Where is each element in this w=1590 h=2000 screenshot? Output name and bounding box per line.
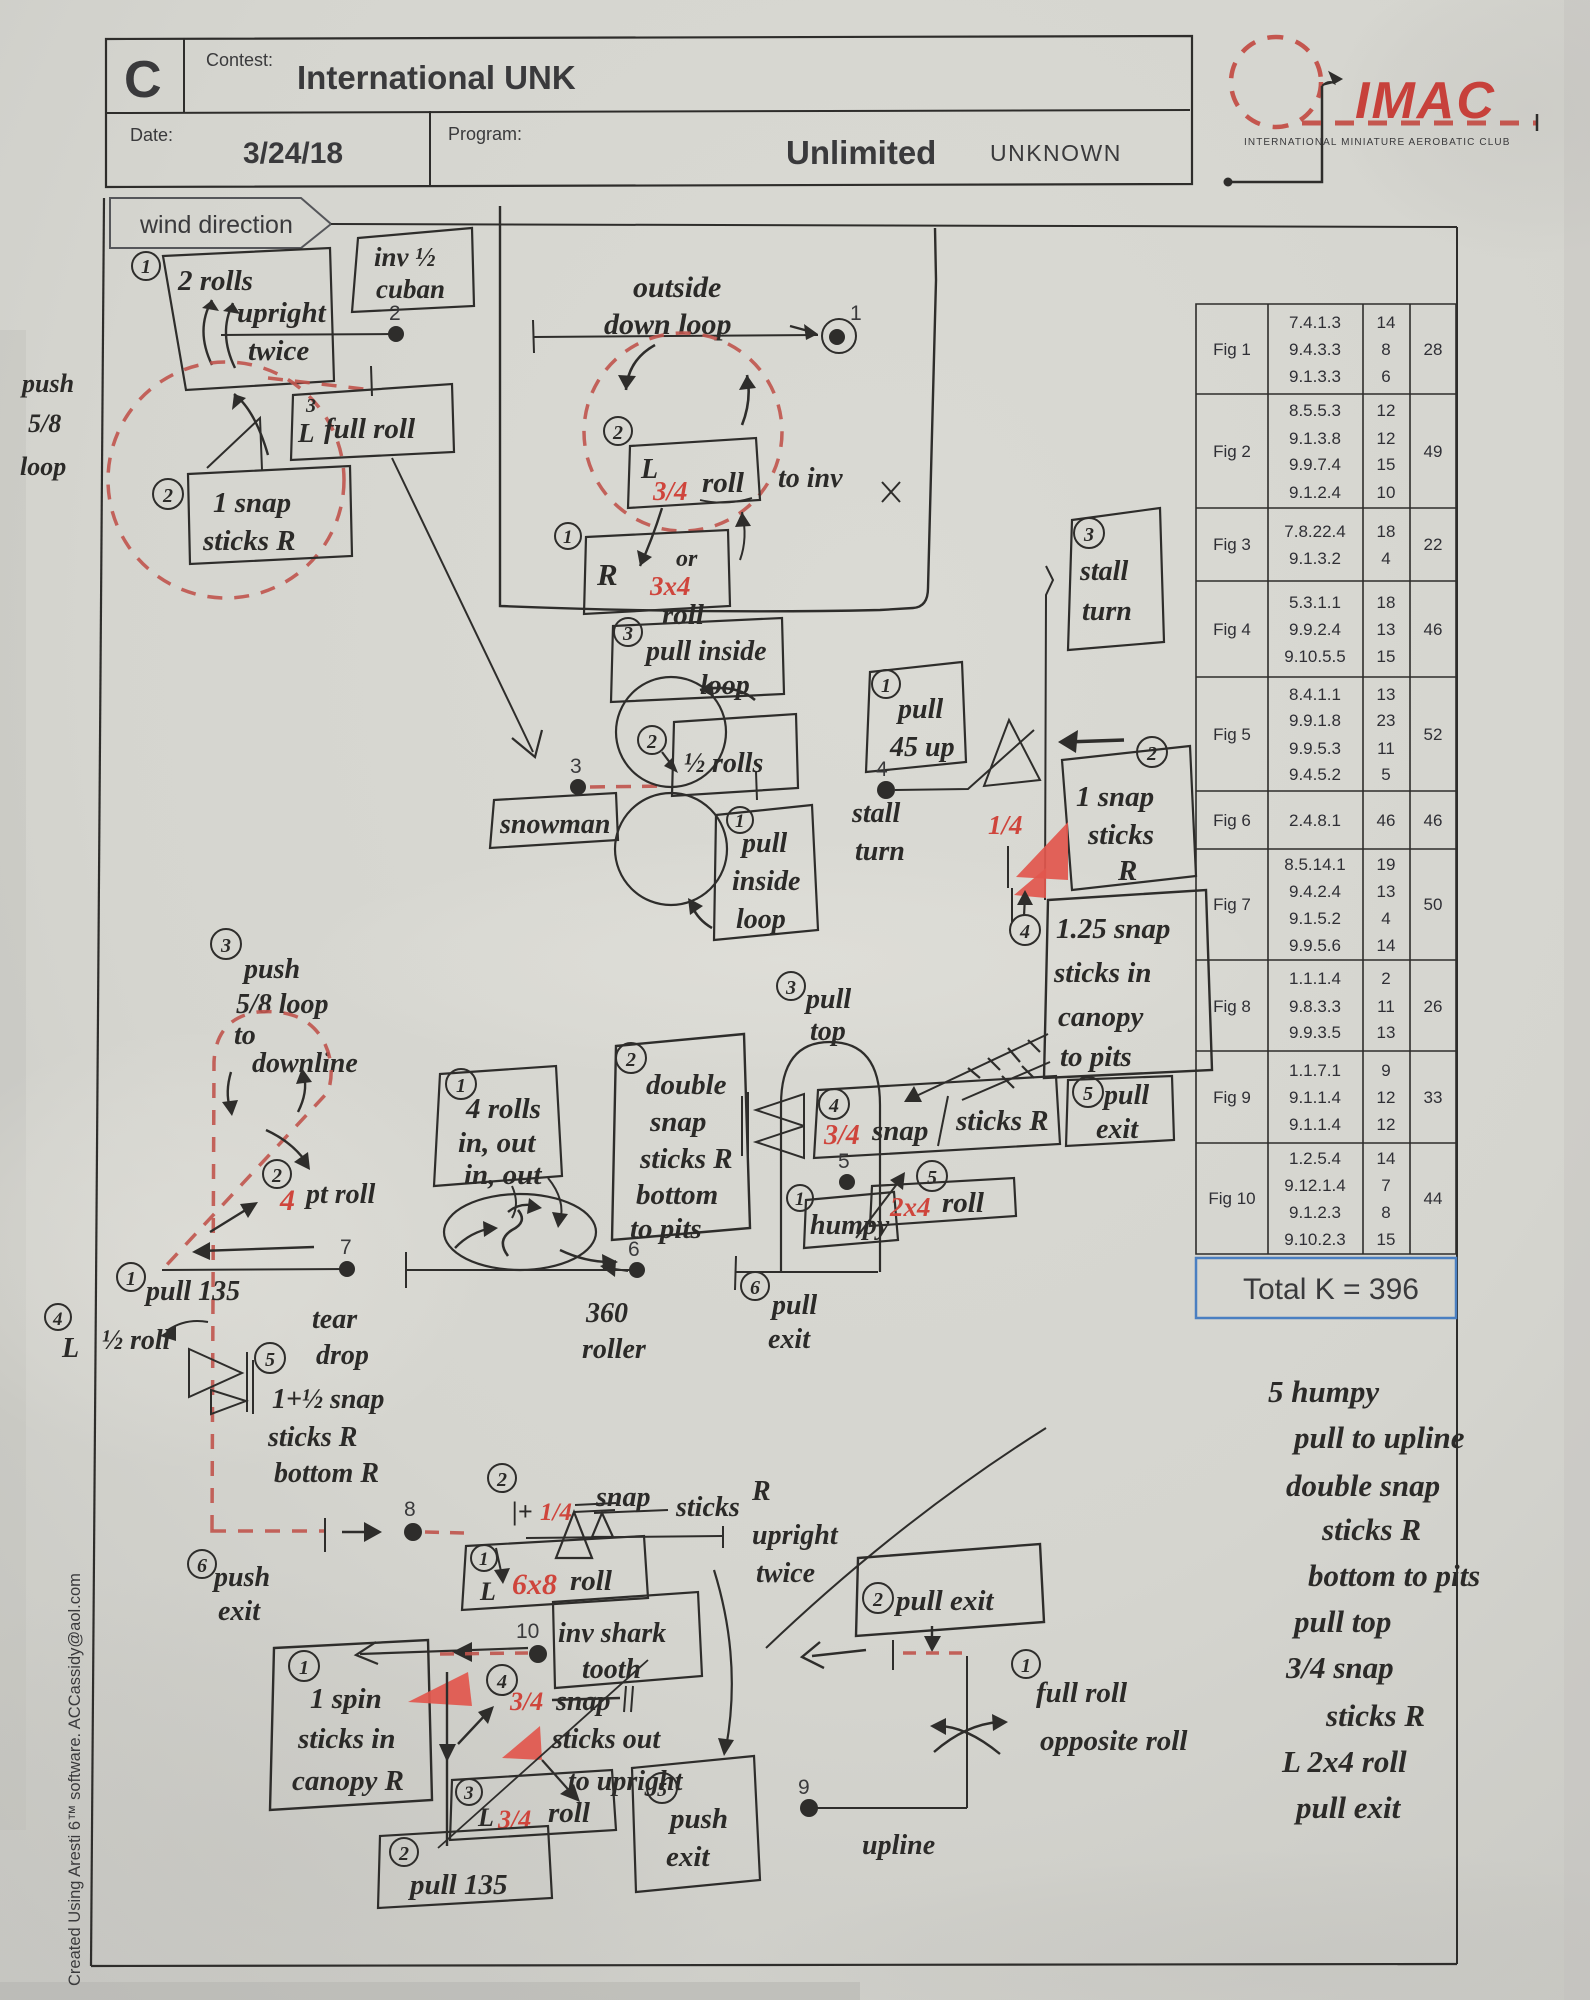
svg-text:roll: roll [662, 599, 705, 631]
svg-text:canopy R: canopy R [292, 1765, 404, 1797]
svg-text:1/4: 1/4 [988, 810, 1023, 840]
svg-text:9.1.1.4: 9.1.1.4 [1289, 1115, 1341, 1134]
svg-text:Fig 5: Fig 5 [1213, 725, 1251, 744]
svg-text:22: 22 [1424, 535, 1443, 554]
svg-text:5: 5 [657, 1779, 667, 1801]
svg-text:Total K = 396: Total K = 396 [1243, 1273, 1419, 1306]
svg-text:upright: upright [237, 297, 327, 329]
svg-text:upright: upright [752, 1520, 839, 1551]
svg-text:Fig 6: Fig 6 [1213, 811, 1251, 830]
svg-text:8.4.1.1: 8.4.1.1 [1289, 685, 1341, 704]
svg-text:18: 18 [1377, 593, 1396, 612]
svg-text:double: double [646, 1069, 727, 1101]
svg-text:10: 10 [1377, 483, 1396, 502]
svg-text:Fig 9: Fig 9 [1213, 1088, 1251, 1107]
svg-text:International UNK: International UNK [297, 59, 576, 96]
svg-text:Unlimited: Unlimited [786, 134, 936, 171]
svg-text:7: 7 [340, 1236, 352, 1259]
svg-text:9: 9 [1381, 1061, 1390, 1080]
svg-text:in, out: in, out [464, 1159, 542, 1191]
svg-text:opposite roll: opposite roll [1040, 1725, 1188, 1757]
svg-text:pull exit: pull exit [893, 1585, 994, 1617]
svg-text:wind direction: wind direction [139, 211, 293, 239]
svg-text:roll: roll [942, 1187, 985, 1219]
svg-text:pull: pull [770, 1290, 817, 1321]
svg-text:pt roll: pt roll [304, 1179, 375, 1210]
svg-text:9.4.5.2: 9.4.5.2 [1289, 765, 1341, 784]
svg-text:snowman: snowman [499, 809, 611, 840]
svg-text:9.1.3.2: 9.1.3.2 [1289, 549, 1341, 568]
svg-text:snap: snap [595, 1482, 650, 1513]
svg-text:loop: loop [736, 904, 786, 935]
svg-text:9.1.5.2: 9.1.5.2 [1289, 909, 1341, 928]
svg-text:5/8 loop: 5/8 loop [236, 989, 329, 1020]
svg-text:360: 360 [585, 1298, 628, 1329]
svg-text:9.4.3.3: 9.4.3.3 [1289, 340, 1341, 359]
svg-text:roller: roller [582, 1334, 647, 1365]
svg-text:18: 18 [1377, 522, 1396, 541]
svg-text:2: 2 [612, 422, 623, 444]
svg-text:push: push [20, 369, 74, 398]
svg-text:2: 2 [1146, 743, 1157, 765]
svg-text:52: 52 [1424, 725, 1443, 744]
svg-text:9.4.2.4: 9.4.2.4 [1289, 882, 1341, 901]
svg-text:to pits: to pits [630, 1213, 702, 1245]
svg-text:inv ½: inv ½ [374, 242, 436, 272]
svg-text:3/24/18: 3/24/18 [243, 137, 343, 170]
svg-text:26: 26 [1424, 997, 1443, 1016]
svg-text:13: 13 [1377, 882, 1396, 901]
svg-text:33: 33 [1424, 1088, 1443, 1107]
svg-text:3/4: 3/4 [652, 476, 688, 506]
svg-text:to inv: to inv [778, 463, 843, 494]
svg-text:pull 135: pull 135 [144, 1276, 240, 1307]
svg-text:½ roll: ½ roll [102, 1325, 171, 1356]
svg-text:10: 10 [516, 1620, 539, 1643]
svg-text:3/4: 3/4 [823, 1120, 860, 1151]
svg-text:5: 5 [1381, 765, 1390, 784]
svg-text:C: C [124, 51, 162, 109]
svg-text:sticks: sticks [675, 1492, 740, 1523]
svg-text:pull: pull [804, 984, 851, 1015]
svg-text:1: 1 [850, 302, 862, 325]
svg-text:9.9.1.8: 9.9.1.8 [1289, 711, 1341, 730]
svg-text:9.9.3.5: 9.9.3.5 [1289, 1023, 1341, 1042]
svg-text:Contest:: Contest: [206, 50, 273, 70]
svg-text:drop: drop [316, 1340, 369, 1371]
svg-text:stall: stall [851, 798, 900, 829]
svg-text:UNKNOWN: UNKNOWN [990, 140, 1122, 166]
svg-text:5 humpy: 5 humpy [1268, 1374, 1379, 1409]
svg-text:Fig 10: Fig 10 [1208, 1189, 1255, 1208]
svg-text:double snap: double snap [1286, 1468, 1440, 1503]
svg-text:1: 1 [795, 1189, 805, 1210]
svg-text:49: 49 [1424, 442, 1443, 461]
svg-text:bottom to pits: bottom to pits [1308, 1558, 1480, 1593]
svg-text:3/4 snap: 3/4 snap [1285, 1650, 1394, 1685]
svg-text:INTERNATIONAL MINIATURE AEROBA: INTERNATIONAL MINIATURE AEROBATIC CLUB [1244, 137, 1510, 148]
svg-text:1 snap: 1 snap [213, 487, 291, 519]
svg-text:sticks R: sticks R [955, 1105, 1049, 1137]
svg-text:46: 46 [1377, 811, 1396, 830]
svg-text:sticks R: sticks R [1321, 1512, 1421, 1547]
svg-text:6x8: 6x8 [512, 1568, 557, 1601]
svg-text:L: L [61, 1333, 79, 1364]
svg-text:5.3.1.1: 5.3.1.1 [1289, 593, 1341, 612]
svg-text:5: 5 [265, 1349, 275, 1371]
svg-text:2: 2 [872, 1589, 883, 1611]
svg-text:full roll: full roll [1036, 1677, 1128, 1709]
svg-text:2: 2 [162, 485, 173, 507]
svg-text:Fig 1: Fig 1 [1213, 340, 1251, 359]
svg-text:sticks R: sticks R [267, 1422, 357, 1453]
svg-text:1: 1 [126, 1268, 136, 1290]
svg-text:2 rolls: 2 rolls [177, 265, 253, 297]
svg-text:L 2x4 roll: L 2x4 roll [1281, 1744, 1407, 1779]
svg-text:15: 15 [1377, 647, 1396, 666]
svg-text:push: push [242, 954, 300, 985]
svg-text:Created Using Aresti 6™ softwa: Created Using Aresti 6™ software. ACCass… [66, 1573, 84, 1986]
svg-text:turn: turn [1082, 596, 1132, 627]
svg-text:exit: exit [1096, 1114, 1139, 1145]
svg-text:turn: turn [855, 836, 905, 867]
svg-text:Fig 7: Fig 7 [1213, 895, 1251, 914]
svg-text:19: 19 [1377, 855, 1396, 874]
svg-text:9.10.5.5: 9.10.5.5 [1284, 647, 1345, 666]
svg-text:5: 5 [1083, 1083, 1093, 1105]
svg-text:6: 6 [750, 1277, 760, 1299]
svg-text:loop: loop [20, 452, 66, 481]
svg-text:13: 13 [1377, 620, 1396, 639]
svg-text:12: 12 [1377, 401, 1396, 420]
svg-text:9.9.5.6: 9.9.5.6 [1289, 936, 1341, 955]
svg-text:8.5.14.1: 8.5.14.1 [1284, 855, 1345, 874]
svg-text:sticks out: sticks out [551, 1724, 661, 1755]
svg-text:pull top: pull top [1291, 1604, 1391, 1639]
svg-text:7.8.22.4: 7.8.22.4 [1284, 522, 1345, 541]
svg-text:3: 3 [570, 755, 582, 778]
svg-text:snap: snap [649, 1106, 706, 1138]
svg-text:bottom: bottom [636, 1179, 718, 1211]
svg-text:4: 4 [828, 1095, 839, 1117]
svg-text:1.2.5.4: 1.2.5.4 [1289, 1149, 1341, 1168]
svg-text:9.1.3.3: 9.1.3.3 [1289, 367, 1341, 386]
svg-text:1.25 snap: 1.25 snap [1056, 913, 1170, 945]
svg-text:4: 4 [1019, 921, 1030, 943]
svg-text:Fig 2: Fig 2 [1213, 442, 1251, 461]
svg-text:12: 12 [1377, 429, 1396, 448]
svg-text:4 rolls: 4 rolls [465, 1093, 541, 1125]
svg-text:|+: |+ [512, 1497, 533, 1526]
svg-text:roll: roll [702, 467, 745, 499]
svg-text:pull: pull [896, 694, 943, 725]
svg-text:L: L [477, 1803, 494, 1832]
svg-text:1: 1 [881, 675, 891, 697]
svg-text:bottom R: bottom R [274, 1458, 379, 1489]
svg-text:44: 44 [1424, 1189, 1443, 1208]
svg-text:13: 13 [1377, 685, 1396, 704]
svg-text:9.10.2.3: 9.10.2.3 [1284, 1230, 1345, 1249]
svg-text:sticks R: sticks R [1325, 1698, 1425, 1733]
svg-text:pull to upline: pull to upline [1291, 1420, 1465, 1455]
svg-text:6: 6 [628, 1238, 640, 1261]
svg-text:pull exit: pull exit [1293, 1790, 1402, 1825]
svg-text:9: 9 [798, 1776, 810, 1799]
svg-text:9.9.5.3: 9.9.5.3 [1289, 739, 1341, 758]
svg-text:stall: stall [1079, 556, 1128, 587]
svg-text:or: or [676, 546, 698, 572]
svg-text:7.4.1.3: 7.4.1.3 [1289, 313, 1341, 332]
svg-text:exit: exit [768, 1324, 811, 1355]
svg-text:9.9.7.4: 9.9.7.4 [1289, 455, 1341, 474]
svg-text:R: R [596, 557, 618, 592]
svg-text:4: 4 [876, 758, 888, 781]
svg-text:R: R [751, 1476, 771, 1507]
svg-text:inside: inside [732, 866, 800, 897]
svg-text:½ rolls: ½ rolls [684, 748, 763, 779]
svg-text:9.1.2.3: 9.1.2.3 [1289, 1203, 1341, 1222]
svg-text:L: L [479, 1577, 496, 1606]
svg-text:L: L [297, 418, 315, 448]
svg-text:9.1.3.8: 9.1.3.8 [1289, 429, 1341, 448]
svg-text:1: 1 [1021, 1655, 1031, 1677]
svg-text:Fig 8: Fig 8 [1213, 997, 1251, 1016]
svg-text:4: 4 [1381, 909, 1390, 928]
svg-text:roll: roll [548, 1797, 591, 1829]
svg-text:46: 46 [1424, 620, 1443, 639]
svg-text:Fig 4: Fig 4 [1213, 620, 1251, 639]
svg-text:45 up: 45 up [889, 732, 955, 763]
svg-text:6: 6 [1381, 367, 1390, 386]
svg-text:14: 14 [1377, 1149, 1396, 1168]
svg-text:5: 5 [927, 1167, 937, 1189]
svg-text:3: 3 [305, 395, 316, 417]
svg-text:1 snap: 1 snap [1076, 781, 1154, 813]
svg-text:5: 5 [838, 1150, 850, 1173]
svg-text:1: 1 [479, 1549, 489, 1570]
svg-text:pull: pull [1102, 1080, 1149, 1111]
svg-text:1.1.7.1: 1.1.7.1 [1289, 1061, 1341, 1080]
svg-text:upline: upline [862, 1830, 935, 1861]
svg-text:1/4: 1/4 [540, 1499, 572, 1526]
svg-text:9.12.1.4: 9.12.1.4 [1284, 1176, 1345, 1195]
svg-text:canopy: canopy [1058, 1001, 1144, 1033]
svg-text:9.9.2.4: 9.9.2.4 [1289, 620, 1341, 639]
svg-text:4: 4 [496, 1671, 507, 1693]
svg-text:12: 12 [1377, 1115, 1396, 1134]
svg-text:6: 6 [197, 1555, 207, 1577]
svg-text:9.1.2.4: 9.1.2.4 [1289, 483, 1341, 502]
svg-text:Fig 3: Fig 3 [1213, 535, 1251, 554]
svg-text:9.1.1.4: 9.1.1.4 [1289, 1088, 1341, 1107]
svg-text:8: 8 [404, 1498, 416, 1521]
svg-text:sticks in: sticks in [1053, 957, 1152, 989]
svg-text:snap: snap [871, 1115, 928, 1147]
svg-text:push: push [667, 1803, 728, 1835]
svg-text:1: 1 [141, 256, 151, 278]
svg-text:3: 3 [220, 935, 231, 957]
svg-text:2x4: 2x4 [889, 1192, 931, 1222]
svg-text:1: 1 [563, 527, 573, 548]
svg-text:2: 2 [496, 1469, 507, 1491]
svg-text:1: 1 [456, 1075, 466, 1097]
svg-text:14: 14 [1377, 313, 1396, 332]
svg-text:sticks R: sticks R [202, 525, 296, 557]
svg-text:sticks: sticks [1087, 819, 1154, 851]
svg-text:9.8.3.3: 9.8.3.3 [1289, 997, 1341, 1016]
svg-text:1: 1 [299, 1657, 309, 1679]
svg-text:8: 8 [1381, 1203, 1390, 1222]
svg-text:12: 12 [1377, 1088, 1396, 1107]
svg-text:sticks in: sticks in [297, 1723, 396, 1755]
svg-text:28: 28 [1424, 340, 1443, 359]
svg-text:23: 23 [1377, 711, 1396, 730]
svg-text:cuban: cuban [376, 274, 445, 304]
svg-text:Program:: Program: [448, 124, 522, 144]
svg-text:2: 2 [398, 1843, 409, 1865]
svg-text:2: 2 [1381, 969, 1390, 988]
svg-text:pull: pull [740, 828, 787, 859]
svg-text:sticks R: sticks R [639, 1143, 733, 1175]
svg-text:3/4: 3/4 [509, 1687, 543, 1716]
svg-text:exit: exit [666, 1841, 710, 1873]
svg-text:8.5.5.3: 8.5.5.3 [1289, 401, 1341, 420]
svg-text:3x4: 3x4 [649, 571, 691, 601]
svg-text:5/8: 5/8 [28, 409, 61, 438]
svg-text:to: to [234, 1020, 256, 1051]
svg-text:4: 4 [279, 1184, 295, 1217]
svg-text:pull 135: pull 135 [407, 1869, 508, 1901]
svg-text:pull inside: pull inside [644, 636, 767, 667]
svg-text:push: push [212, 1562, 270, 1593]
svg-text:7: 7 [1381, 1176, 1390, 1195]
svg-text:outside: outside [633, 271, 721, 304]
svg-text:11: 11 [1377, 739, 1395, 758]
svg-text:2: 2 [389, 302, 401, 325]
svg-text:to pits: to pits [1060, 1041, 1132, 1073]
svg-text:2: 2 [625, 1049, 636, 1071]
svg-text:13: 13 [1377, 1023, 1396, 1042]
svg-text:8: 8 [1381, 340, 1390, 359]
svg-text:roll: roll [570, 1565, 613, 1597]
svg-text:3: 3 [1083, 524, 1094, 546]
svg-text:twice: twice [248, 335, 309, 367]
svg-text:3: 3 [463, 1783, 474, 1804]
svg-text:11: 11 [1377, 997, 1395, 1016]
svg-text:2.4.8.1: 2.4.8.1 [1289, 811, 1341, 830]
svg-text:3: 3 [622, 623, 633, 645]
svg-text:exit: exit [218, 1596, 261, 1627]
svg-text:1+½ snap: 1+½ snap [272, 1384, 384, 1415]
svg-text:full roll: full roll [324, 413, 416, 445]
svg-text:1 spin: 1 spin [310, 1683, 382, 1715]
svg-text:3: 3 [785, 977, 796, 999]
svg-text:R: R [1117, 855, 1137, 887]
svg-text:tear: tear [312, 1304, 358, 1335]
svg-text:14: 14 [1377, 936, 1396, 955]
svg-text:in, out: in, out [458, 1127, 536, 1159]
svg-text:4: 4 [1381, 549, 1390, 568]
svg-text:tooth: tooth [582, 1654, 641, 1685]
svg-text:twice: twice [756, 1558, 815, 1589]
svg-text:1.1.1.4: 1.1.1.4 [1289, 969, 1341, 988]
svg-text:15: 15 [1377, 1230, 1396, 1249]
svg-text:4: 4 [52, 1309, 63, 1330]
svg-text:15: 15 [1377, 455, 1396, 474]
svg-text:50: 50 [1424, 895, 1443, 914]
svg-text:46: 46 [1424, 811, 1443, 830]
svg-text:Date:: Date: [130, 125, 173, 145]
svg-text:2: 2 [646, 731, 657, 753]
svg-text:inv shark: inv shark [558, 1618, 666, 1649]
